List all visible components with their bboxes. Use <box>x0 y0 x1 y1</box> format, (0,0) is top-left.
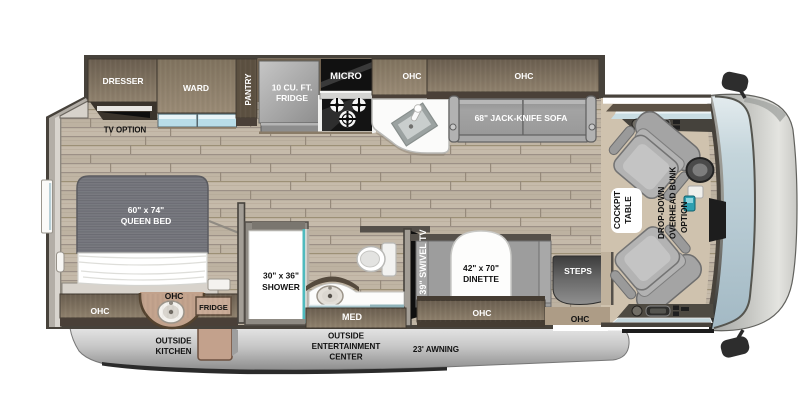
svg-text:10 CU. FT.: 10 CU. FT. <box>272 83 313 93</box>
svg-text:OUTSIDE: OUTSIDE <box>328 332 365 341</box>
svg-text:23' AWNING: 23' AWNING <box>413 345 459 354</box>
svg-text:OHC: OHC <box>165 291 184 301</box>
svg-text:OHC: OHC <box>91 306 110 316</box>
svg-text:FRIDGE: FRIDGE <box>276 93 308 103</box>
svg-text:WARD: WARD <box>183 83 209 93</box>
svg-text:TABLE: TABLE <box>623 196 633 224</box>
svg-text:DINETTE: DINETTE <box>463 274 499 284</box>
svg-text:DRESSER: DRESSER <box>102 76 143 86</box>
svg-text:OHC: OHC <box>403 71 422 81</box>
svg-text:KITCHEN: KITCHEN <box>156 347 192 356</box>
svg-text:OHC: OHC <box>473 308 492 318</box>
svg-text:68" JACK-KNIFE SOFA: 68" JACK-KNIFE SOFA <box>475 113 568 123</box>
svg-text:OHC: OHC <box>515 71 534 81</box>
svg-text:42" x 70": 42" x 70" <box>463 263 499 273</box>
svg-text:QUEEN BED: QUEEN BED <box>121 216 172 226</box>
svg-text:MED: MED <box>342 312 363 322</box>
svg-text:OUTSIDE: OUTSIDE <box>156 337 193 346</box>
svg-text:COCKPIT: COCKPIT <box>612 190 622 229</box>
svg-text:30" x 36": 30" x 36" <box>263 271 299 281</box>
svg-text:MICRO: MICRO <box>330 71 362 82</box>
svg-text:CENTER: CENTER <box>329 353 362 362</box>
svg-text:FRIDGE: FRIDGE <box>199 303 228 312</box>
svg-text:ENTERTAINMENT: ENTERTAINMENT <box>312 342 381 351</box>
svg-text:DROP-DOWN: DROP-DOWN <box>657 187 666 239</box>
svg-text:39" SWIVEL TV: 39" SWIVEL TV <box>418 229 428 294</box>
svg-text:60" x 74": 60" x 74" <box>128 205 164 215</box>
svg-text:SHOWER: SHOWER <box>262 282 300 292</box>
svg-text:STEPS: STEPS <box>564 266 592 276</box>
svg-text:OHC: OHC <box>571 314 590 324</box>
svg-text:OVERHEAD BUNK: OVERHEAD BUNK <box>669 167 678 239</box>
svg-text:PANTRY: PANTRY <box>244 73 253 106</box>
svg-text:TV OPTION: TV OPTION <box>104 126 147 135</box>
svg-text:OPTION: OPTION <box>680 202 689 233</box>
